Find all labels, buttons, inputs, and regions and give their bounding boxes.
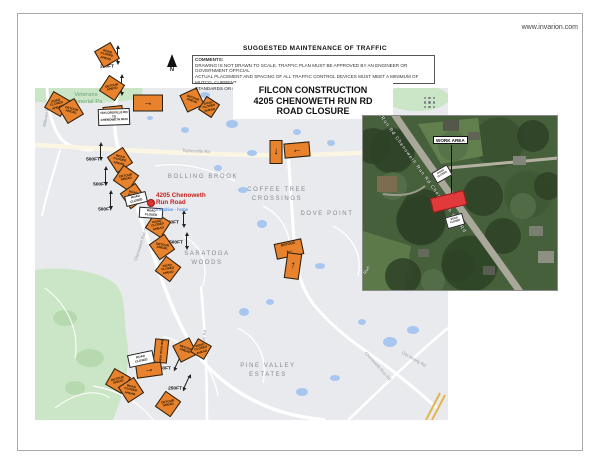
sign-text: ROAD CLOSED AHEAD xyxy=(193,342,209,355)
map-area-label: ESTATES xyxy=(249,372,287,378)
sign-text: DETOUR AHEAD xyxy=(183,94,201,106)
street-name-label: Taylorsville Rd xyxy=(182,148,210,154)
comments-box: COMMENTS: DRAWING IS NOT DRAWN TO SCALE.… xyxy=(192,55,435,84)
dimension-line xyxy=(110,193,111,207)
warning-diamond-sign: DETOUR AHEAD xyxy=(149,234,175,260)
dimension-line xyxy=(183,376,189,388)
map-area-label: SARATOGA xyxy=(184,251,230,257)
address-text: min drive - home xyxy=(156,208,206,213)
map-area-label: BOLLING BROOK xyxy=(168,174,238,180)
warning-diamond-sign: ROAD CLOSED AHEAD xyxy=(190,338,212,360)
distance-label: 500FT xyxy=(98,208,112,213)
north-arrow-triangle xyxy=(167,54,177,67)
dimension-line xyxy=(105,169,106,183)
map-area-label: COFFEE TREE xyxy=(247,187,307,193)
work-area-label: WORK AREA xyxy=(433,136,468,144)
detour-arrow-sign: → xyxy=(133,95,163,112)
road-closed-sign: TAYLORSVILLE RDTOCHENOWETH RUN xyxy=(98,108,131,126)
arrow-glyph-right: → xyxy=(143,99,153,107)
sign-text: ROAD CLOSED AHEAD xyxy=(149,218,168,231)
sign-text: END ROAD WORK xyxy=(158,339,163,363)
arrow-glyph-down: ↓ xyxy=(274,148,279,156)
distance-label: 500FT xyxy=(93,183,107,188)
plan-title: FILCON CONSTRUCTION 4205 CHENOWETH RUN R… xyxy=(233,83,393,119)
work-area-leader-line xyxy=(451,145,452,193)
detour-arrow-sign: ↑ xyxy=(284,252,302,280)
satellite-inset: Run Rd Chenoweth Run Rd Chenoweth Run Rd… xyxy=(362,115,558,291)
location-pin xyxy=(147,199,155,207)
detour-arrow-sign: ← xyxy=(283,141,310,158)
sign-text: ROAD CLOSED AHEAD xyxy=(111,153,130,166)
north-label: N xyxy=(163,67,181,73)
north-arrow-icon: N xyxy=(163,54,181,78)
map-area-label: Veterans xyxy=(74,92,97,98)
apps-grid-icon xyxy=(423,96,436,109)
warning-diamond-sign: DETOUR AHEAD xyxy=(155,391,181,417)
map-area-label: DOVE POINT xyxy=(300,211,353,217)
arrow-glyph-up: ↑ xyxy=(290,262,296,271)
detour-arrow-sign: ↓ xyxy=(270,140,283,164)
dimension-line xyxy=(100,145,101,158)
street-name-label: Chenoweth Run Rd xyxy=(364,350,393,381)
map-area-label: WOODS xyxy=(191,260,222,266)
dimension-line xyxy=(183,213,184,225)
sign-text: DETOUR AHEAD xyxy=(62,106,80,117)
sign-text: ROAD CLOSED AHEAD xyxy=(122,383,141,396)
arrow-glyph-left: ← xyxy=(292,146,303,155)
sign-text: CLOSED xyxy=(145,213,158,217)
address-label: 4205 ChenowethRun Roadmin drive - home xyxy=(156,193,206,213)
map-area-label: CROSSINGS xyxy=(252,196,302,202)
dimension-line xyxy=(186,235,187,247)
title-line-1: FILCON CONSTRUCTION xyxy=(237,85,389,96)
street-name-label: Chenoweth Run Rd xyxy=(133,224,149,261)
sign-text: DETOUR AHEAD xyxy=(153,242,171,252)
distance-label: 250FT xyxy=(168,387,182,392)
sign-text: DETOUR AHEAD xyxy=(117,173,135,183)
sign-text: CHENOWETH RUN xyxy=(101,118,128,122)
sign-text: ROAD CLOSED AHEAD xyxy=(159,263,177,275)
arrow-glyph-right: → xyxy=(143,365,154,374)
title-line-2: 4205 CHENOWETH RUN RD xyxy=(237,96,389,107)
sign-text: DETOUR AHEAD xyxy=(103,83,121,93)
map-area-label: PINE VALLEY xyxy=(240,363,296,369)
sign-text: ROAD CLOSED AHEAD xyxy=(98,48,117,62)
sign-text: CLOSED xyxy=(135,358,148,364)
street-name-label: Old Heady Rd xyxy=(401,350,427,368)
sign-text: ROAD CLOSED AHEAD xyxy=(201,101,217,114)
comments-line-1: DRAWING IS NOT DRAWN TO SCALE. TRAFFIC P… xyxy=(195,63,432,74)
sign-text: DETOUR AHEAD xyxy=(159,399,177,409)
distance-label: 500FT xyxy=(86,158,100,163)
sign-text: CLOSED xyxy=(450,220,461,226)
address-text: Run Road xyxy=(156,200,206,207)
end-road-work-sign: END ROAD WORK xyxy=(153,338,169,363)
sign-text: CLOSED xyxy=(130,197,143,203)
